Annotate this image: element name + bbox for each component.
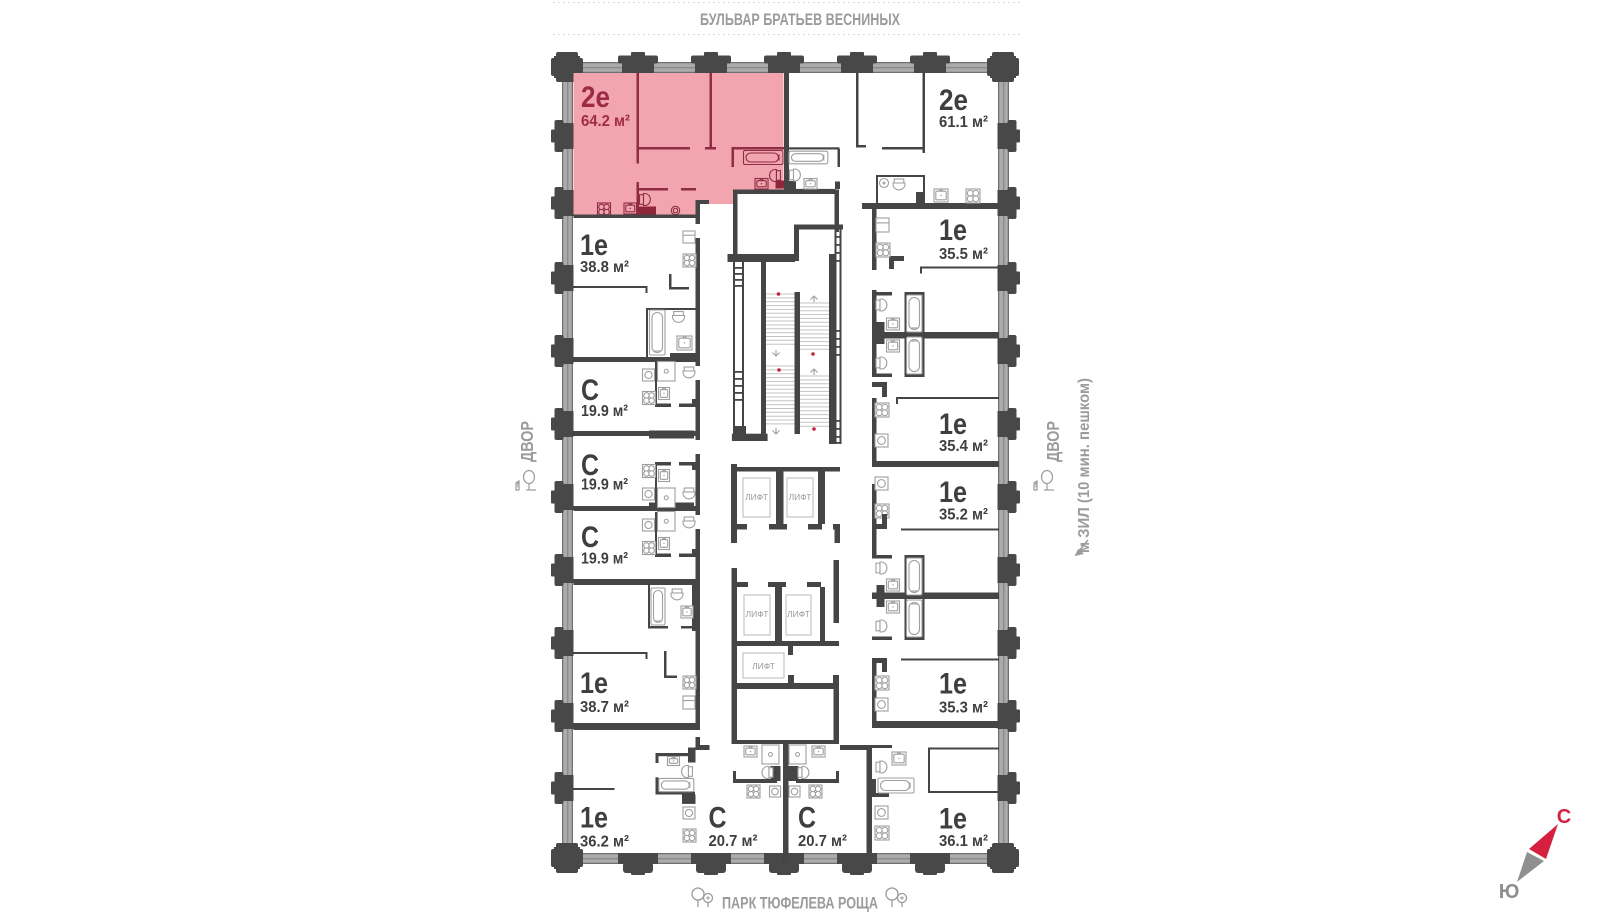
svg-text:19.9 м²: 19.9 м² [581, 403, 628, 420]
svg-text:С: С [581, 521, 599, 554]
svg-text:1e: 1e [939, 408, 967, 441]
svg-text:2e: 2e [581, 81, 610, 114]
svg-text:61.1 м²: 61.1 м² [939, 114, 988, 131]
svg-text:1e: 1e [939, 668, 967, 701]
svg-text:36.2 м²: 36.2 м² [580, 834, 629, 851]
svg-text:35.5 м²: 35.5 м² [939, 246, 988, 263]
svg-text:36.1 м²: 36.1 м² [939, 833, 988, 850]
svg-text:БУЛЬВАР БРАТЬЕВ ВЕСНИНЫХ: БУЛЬВАР БРАТЬЕВ ВЕСНИНЫХ [700, 10, 900, 29]
svg-text:ЛИФТ: ЛИФТ [745, 492, 768, 502]
svg-text:38.7 м²: 38.7 м² [580, 699, 629, 716]
svg-text:ЛИФТ: ЛИФТ [752, 661, 775, 671]
svg-text:20.7 м²: 20.7 м² [709, 833, 758, 850]
svg-text:64.2 м²: 64.2 м² [581, 113, 630, 130]
svg-text:ЛИФТ: ЛИФТ [789, 492, 812, 502]
svg-text:1e: 1e [939, 803, 967, 836]
svg-text:2e: 2e [939, 84, 968, 117]
svg-text:С: С [1557, 806, 1571, 828]
svg-text:ДВОР: ДВОР [517, 421, 537, 462]
svg-text:1e: 1e [580, 229, 608, 262]
svg-text:1e: 1e [580, 802, 608, 835]
svg-text:Ю: Ю [1499, 881, 1520, 903]
svg-text:19.9 м²: 19.9 м² [581, 551, 628, 568]
svg-text:1e: 1e [580, 667, 608, 700]
svg-text:ЛИФТ: ЛИФТ [746, 609, 769, 619]
svg-text:м ЗИЛ (10 мин. пешком): м ЗИЛ (10 мин. пешком) [1076, 378, 1093, 553]
svg-text:С: С [709, 802, 727, 835]
svg-text:1e: 1e [939, 214, 967, 247]
svg-text:19.9 м²: 19.9 м² [581, 477, 628, 494]
svg-text:20.7 м²: 20.7 м² [798, 833, 847, 850]
svg-text:38.8 м²: 38.8 м² [580, 259, 629, 276]
svg-text:35.3 м²: 35.3 м² [939, 700, 988, 717]
svg-text:ЛИФТ: ЛИФТ [787, 609, 810, 619]
svg-text:1e: 1e [939, 476, 967, 509]
svg-text:ПАРК ТЮФЕЛЕВА РОЩА: ПАРК ТЮФЕЛЕВА РОЩА [722, 894, 878, 913]
svg-text:35.2 м²: 35.2 м² [939, 507, 988, 524]
svg-text:ДВОР: ДВОР [1043, 421, 1063, 462]
svg-text:С: С [798, 802, 816, 835]
svg-text:35.4 м²: 35.4 м² [939, 438, 988, 455]
